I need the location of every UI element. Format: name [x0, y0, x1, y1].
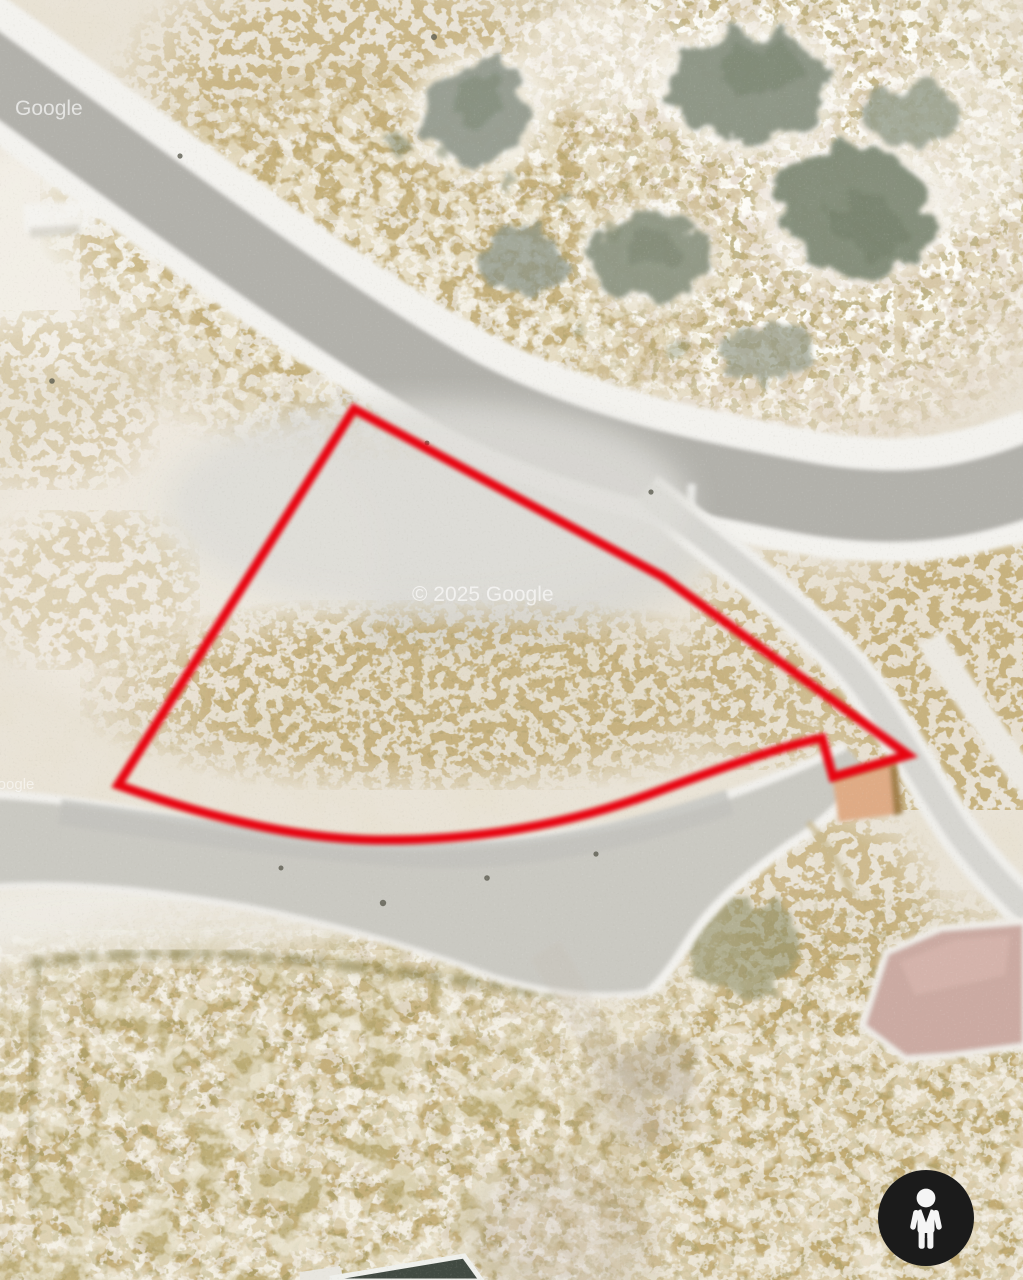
svg-text:Google: Google	[0, 776, 34, 793]
svg-text:Google: Google	[15, 97, 83, 120]
svg-text:© 2025 Google: © 2025 Google	[412, 583, 554, 606]
